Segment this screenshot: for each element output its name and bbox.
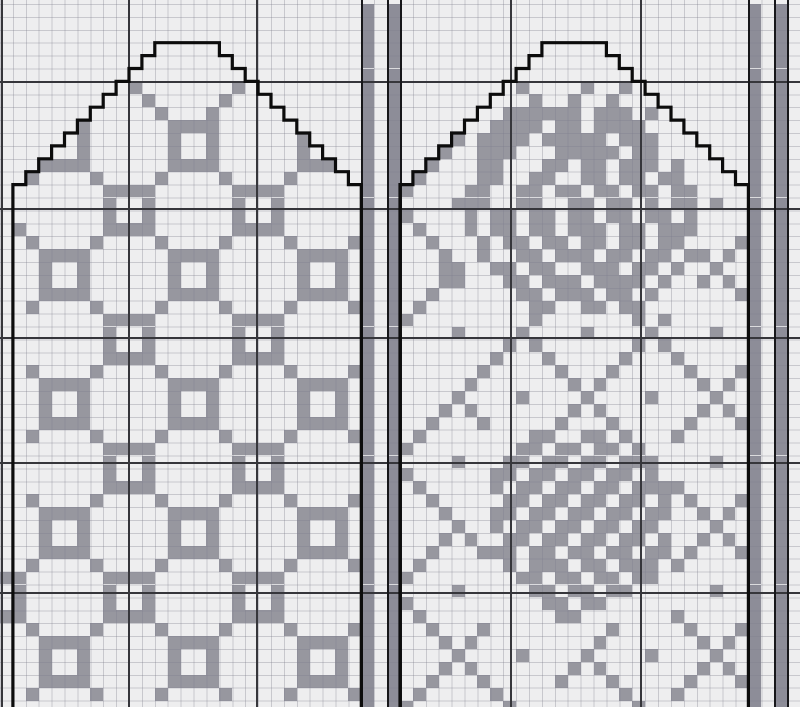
pattern-stitch-cell <box>581 223 594 236</box>
pattern-stitch-cell <box>439 404 452 417</box>
pattern-stitch-cell <box>606 146 619 159</box>
steek-stitch-cell <box>361 468 374 481</box>
pattern-stitch-cell <box>568 185 581 198</box>
pattern-stitch-cell <box>310 675 323 688</box>
steek-stitch-cell <box>361 610 374 623</box>
steek-stitch-cell <box>387 365 400 378</box>
steek-stitch-cell <box>361 301 374 314</box>
steek-stitch-cell <box>748 198 761 211</box>
pattern-stitch-cell <box>594 262 607 275</box>
pattern-stitch-cell <box>477 675 490 688</box>
pattern-stitch-cell <box>568 481 581 494</box>
pattern-stitch-cell <box>90 365 103 378</box>
pattern-stitch-cell <box>735 546 748 559</box>
steek-stitch-cell <box>361 236 374 249</box>
pattern-stitch-cell <box>671 688 684 701</box>
pattern-stitch-cell <box>297 262 310 275</box>
pattern-stitch-cell <box>658 249 671 262</box>
pattern-stitch-cell <box>568 662 581 675</box>
pattern-stitch-cell <box>503 120 516 133</box>
pattern-stitch-cell <box>606 94 619 107</box>
pattern-stitch-cell <box>503 533 516 546</box>
pattern-stitch-cell <box>490 468 503 481</box>
pattern-stitch-cell <box>116 352 129 365</box>
steek-stitch-cell <box>774 520 787 533</box>
pattern-stitch-cell <box>77 120 90 133</box>
pattern-stitch-cell <box>671 610 684 623</box>
pattern-stitch-cell <box>77 404 90 417</box>
pattern-stitch-cell <box>168 675 181 688</box>
pattern-stitch-cell <box>181 249 194 262</box>
pattern-stitch-cell <box>439 507 452 520</box>
steek-stitch-cell <box>774 456 787 469</box>
pattern-stitch-cell <box>52 159 65 172</box>
steek-stitch-cell <box>748 662 761 675</box>
steek-stitch-cell <box>748 352 761 365</box>
steek-stitch-cell <box>748 610 761 623</box>
pattern-stitch-cell <box>477 249 490 262</box>
pattern-stitch-cell <box>697 507 710 520</box>
pattern-stitch-cell <box>516 288 529 301</box>
steek-stitch-cell <box>748 365 761 378</box>
pattern-stitch-cell <box>39 662 52 675</box>
pattern-stitch-cell <box>348 623 361 636</box>
pattern-stitch-cell <box>52 546 65 559</box>
pattern-stitch-cell <box>697 533 710 546</box>
pattern-stitch-cell <box>658 533 671 546</box>
pattern-stitch-cell <box>581 468 594 481</box>
pattern-stitch-cell <box>632 146 645 159</box>
pattern-stitch-cell <box>619 288 632 301</box>
pattern-stitch-cell <box>490 520 503 533</box>
pattern-stitch-cell <box>581 133 594 146</box>
pattern-stitch-cell <box>426 546 439 559</box>
pattern-stitch-cell <box>490 120 503 133</box>
pattern-stitch-cell <box>232 327 245 340</box>
pattern-stitch-cell <box>594 301 607 314</box>
pattern-stitch-cell <box>632 159 645 172</box>
pattern-stitch-cell <box>348 430 361 443</box>
pattern-stitch-cell <box>516 533 529 546</box>
steek-stitch-cell <box>774 133 787 146</box>
steek-stitch-cell <box>748 559 761 572</box>
pattern-stitch-cell <box>116 443 129 456</box>
pattern-stitch-cell <box>619 494 632 507</box>
pattern-stitch-cell <box>645 327 658 340</box>
steek-stitch-cell <box>361 365 374 378</box>
steek-stitch-cell <box>774 430 787 443</box>
pattern-stitch-cell <box>619 559 632 572</box>
pattern-stitch-cell <box>65 417 78 430</box>
steek-stitch-cell <box>387 120 400 133</box>
steek-stitch-cell <box>361 404 374 417</box>
steek-stitch-cell <box>387 352 400 365</box>
pattern-stitch-cell <box>297 275 310 288</box>
pattern-stitch-cell <box>297 391 310 404</box>
pattern-stitch-cell <box>581 172 594 185</box>
pattern-stitch-cell <box>684 185 697 198</box>
steek-stitch-cell <box>387 597 400 610</box>
pattern-stitch-cell <box>658 494 671 507</box>
steek-stitch-cell <box>387 585 400 598</box>
pattern-stitch-cell <box>568 198 581 211</box>
pattern-stitch-cell <box>426 417 439 430</box>
pattern-stitch-cell <box>206 417 219 430</box>
pattern-stitch-cell <box>323 159 336 172</box>
pattern-stitch-cell <box>39 546 52 559</box>
steek-stitch-cell <box>361 688 374 701</box>
pattern-stitch-cell <box>568 288 581 301</box>
pattern-stitch-cell <box>503 210 516 223</box>
pattern-stitch-cell <box>619 133 632 146</box>
pattern-stitch-cell <box>542 210 555 223</box>
pattern-stitch-cell <box>632 236 645 249</box>
pattern-stitch-cell <box>142 339 155 352</box>
pattern-stitch-cell <box>400 443 413 456</box>
pattern-stitch-cell <box>671 352 684 365</box>
steek-stitch-cell <box>748 120 761 133</box>
steek-stitch-cell <box>387 417 400 430</box>
steek-stitch-cell <box>361 133 374 146</box>
pattern-stitch-cell <box>284 301 297 314</box>
pattern-stitch-cell <box>568 133 581 146</box>
steek-stitch-cell <box>361 623 374 636</box>
pattern-stitch-cell <box>297 378 310 391</box>
pattern-stitch-cell <box>13 597 26 610</box>
pattern-stitch-cell <box>645 391 658 404</box>
steek-stitch-cell <box>361 378 374 391</box>
steek-stitch-cell <box>361 352 374 365</box>
pattern-stitch-cell <box>477 417 490 430</box>
pattern-stitch-cell <box>400 210 413 223</box>
pattern-stitch-cell <box>516 185 529 198</box>
pattern-stitch-cell <box>606 365 619 378</box>
steek-stitch-cell <box>387 701 400 707</box>
steek-stitch-cell <box>774 610 787 623</box>
steek-stitch-cell <box>387 533 400 546</box>
pattern-stitch-cell <box>413 559 426 572</box>
pattern-stitch-cell <box>529 249 542 262</box>
pattern-stitch-cell <box>619 688 632 701</box>
steek-stitch-cell <box>361 636 374 649</box>
pattern-stitch-cell <box>142 610 155 623</box>
pattern-stitch-cell <box>77 533 90 546</box>
steek-stitch-cell <box>774 210 787 223</box>
pattern-stitch-cell <box>671 172 684 185</box>
pattern-stitch-cell <box>155 172 168 185</box>
pattern-stitch-cell <box>658 507 671 520</box>
pattern-stitch-cell <box>503 559 516 572</box>
pattern-stitch-cell <box>542 559 555 572</box>
pattern-stitch-cell <box>516 572 529 585</box>
pattern-stitch-cell <box>542 275 555 288</box>
pattern-stitch-cell <box>258 610 271 623</box>
pattern-stitch-cell <box>245 314 258 327</box>
pattern-stitch-cell <box>103 610 116 623</box>
pattern-stitch-cell <box>194 159 207 172</box>
pattern-stitch-cell <box>632 559 645 572</box>
steek-stitch-cell <box>361 223 374 236</box>
pattern-stitch-cell <box>632 481 645 494</box>
pattern-stitch-cell <box>155 559 168 572</box>
pattern-stitch-cell <box>684 249 697 262</box>
pattern-stitch-cell <box>477 146 490 159</box>
steek-stitch-cell <box>387 481 400 494</box>
pattern-stitch-cell <box>232 572 245 585</box>
steek-stitch-cell <box>361 572 374 585</box>
steek-stitch-cell <box>387 391 400 404</box>
pattern-stitch-cell <box>142 185 155 198</box>
pattern-stitch-cell <box>26 365 39 378</box>
pattern-stitch-cell <box>671 430 684 443</box>
pattern-stitch-cell <box>645 249 658 262</box>
pattern-stitch-cell <box>258 481 271 494</box>
pattern-stitch-cell <box>129 352 142 365</box>
pattern-stitch-cell <box>619 198 632 211</box>
pattern-stitch-cell <box>39 288 52 301</box>
pattern-stitch-cell <box>632 572 645 585</box>
steek-stitch-cell <box>361 597 374 610</box>
pattern-stitch-cell <box>645 133 658 146</box>
pattern-stitch-cell <box>542 546 555 559</box>
pattern-stitch-cell <box>529 339 542 352</box>
pattern-stitch-cell <box>594 520 607 533</box>
steek-stitch-cell <box>361 172 374 185</box>
pattern-stitch-cell <box>619 456 632 469</box>
pattern-stitch-cell <box>671 481 684 494</box>
pattern-stitch-cell <box>542 262 555 275</box>
pattern-stitch-cell <box>155 365 168 378</box>
pattern-stitch-cell <box>142 223 155 236</box>
steek-stitch-cell <box>387 494 400 507</box>
pattern-stitch-cell <box>155 623 168 636</box>
pattern-stitch-cell <box>529 107 542 120</box>
pattern-stitch-cell <box>632 185 645 198</box>
pattern-stitch-cell <box>581 301 594 314</box>
pattern-stitch-cell <box>77 146 90 159</box>
pattern-stitch-cell <box>13 610 26 623</box>
pattern-stitch-cell <box>271 585 284 598</box>
pattern-stitch-cell <box>619 81 632 94</box>
pattern-stitch-cell <box>594 236 607 249</box>
pattern-stitch-cell <box>129 314 142 327</box>
pattern-stitch-cell <box>594 494 607 507</box>
pattern-stitch-cell <box>619 249 632 262</box>
steek-stitch-cell <box>774 417 787 430</box>
pattern-stitch-cell <box>490 481 503 494</box>
pattern-stitch-cell <box>13 572 26 585</box>
pattern-stitch-cell <box>632 223 645 236</box>
steek-stitch-cell <box>774 675 787 688</box>
pattern-stitch-cell <box>142 443 155 456</box>
pattern-stitch-cell <box>271 352 284 365</box>
pattern-stitch-cell <box>77 636 90 649</box>
pattern-stitch-cell <box>26 236 39 249</box>
pattern-stitch-cell <box>490 133 503 146</box>
pattern-stitch-cell <box>606 585 619 598</box>
pattern-stitch-cell <box>555 133 568 146</box>
pattern-stitch-cell <box>194 120 207 133</box>
pattern-stitch-cell <box>155 430 168 443</box>
steek-stitch-cell <box>774 572 787 585</box>
steek-stitch-cell <box>774 198 787 211</box>
pattern-stitch-cell <box>568 468 581 481</box>
pattern-stitch-cell <box>232 198 245 211</box>
pattern-stitch-cell <box>645 507 658 520</box>
pattern-stitch-cell <box>77 249 90 262</box>
steek-stitch-cell <box>361 107 374 120</box>
pattern-stitch-cell <box>310 636 323 649</box>
steek-stitch-cell <box>748 585 761 598</box>
pattern-stitch-cell <box>65 378 78 391</box>
pattern-stitch-cell <box>632 262 645 275</box>
pattern-stitch-cell <box>284 365 297 378</box>
pattern-stitch-cell <box>568 585 581 598</box>
pattern-stitch-cell <box>219 236 232 249</box>
pattern-stitch-cell <box>477 198 490 211</box>
steek-stitch-cell <box>361 546 374 559</box>
steek-stitch-cell <box>361 662 374 675</box>
pattern-stitch-cell <box>594 146 607 159</box>
pattern-stitch-cell <box>490 507 503 520</box>
steek-stitch-cell <box>387 507 400 520</box>
pattern-stitch-cell <box>335 662 348 675</box>
pattern-stitch-cell <box>103 210 116 223</box>
steek-stitch-cell <box>361 262 374 275</box>
pattern-stitch-cell <box>619 468 632 481</box>
steek-stitch-cell <box>361 159 374 172</box>
pattern-stitch-cell <box>542 597 555 610</box>
pattern-stitch-cell <box>39 520 52 533</box>
pattern-stitch-cell <box>77 675 90 688</box>
pattern-stitch-cell <box>206 675 219 688</box>
steek-stitch-cell <box>361 288 374 301</box>
steek-stitch-cell <box>774 17 787 30</box>
pattern-stitch-cell <box>555 146 568 159</box>
pattern-stitch-cell <box>645 468 658 481</box>
pattern-stitch-cell <box>335 391 348 404</box>
pattern-stitch-cell <box>490 352 503 365</box>
pattern-stitch-cell <box>619 585 632 598</box>
pattern-stitch-cell <box>555 572 568 585</box>
pattern-stitch-cell <box>606 675 619 688</box>
steek-stitch-cell <box>748 494 761 507</box>
pattern-stitch-cell <box>168 120 181 133</box>
pattern-stitch-cell <box>77 378 90 391</box>
steek-stitch-cell <box>774 314 787 327</box>
pattern-stitch-cell <box>155 236 168 249</box>
pattern-stitch-cell <box>632 275 645 288</box>
pattern-stitch-cell <box>219 172 232 185</box>
pattern-stitch-cell <box>645 288 658 301</box>
pattern-stitch-cell <box>658 236 671 249</box>
steek-stitch-cell <box>387 314 400 327</box>
steek-stitch-cell <box>361 17 374 30</box>
pattern-stitch-cell <box>555 249 568 262</box>
steek-stitch-cell <box>748 675 761 688</box>
steek-stitch-cell <box>748 546 761 559</box>
steek-stitch-cell <box>361 94 374 107</box>
pattern-stitch-cell <box>206 507 219 520</box>
pattern-stitch-cell <box>555 597 568 610</box>
pattern-stitch-cell <box>39 649 52 662</box>
pattern-stitch-cell <box>258 185 271 198</box>
pattern-stitch-cell <box>568 507 581 520</box>
pattern-stitch-cell <box>116 610 129 623</box>
pattern-stitch-cell <box>735 288 748 301</box>
steek-stitch-cell <box>774 352 787 365</box>
pattern-stitch-cell <box>103 585 116 598</box>
pattern-stitch-cell <box>168 649 181 662</box>
steek-stitch-cell <box>387 662 400 675</box>
pattern-stitch-cell <box>297 133 310 146</box>
pattern-stitch-cell <box>465 198 478 211</box>
pattern-stitch-cell <box>335 288 348 301</box>
pattern-stitch-cell <box>632 701 645 707</box>
steek-stitch-cell <box>387 546 400 559</box>
pattern-stitch-cell <box>142 314 155 327</box>
pattern-stitch-cell <box>606 417 619 430</box>
pattern-stitch-cell <box>684 675 697 688</box>
steek-stitch-cell <box>774 30 787 43</box>
steek-stitch-cell <box>748 69 761 82</box>
pattern-stitch-cell <box>529 468 542 481</box>
steek-stitch-cell <box>774 378 787 391</box>
pattern-stitch-cell <box>323 675 336 688</box>
pattern-stitch-cell <box>26 494 39 507</box>
steek-stitch-cell <box>361 585 374 598</box>
pattern-stitch-cell <box>103 223 116 236</box>
pattern-stitch-cell <box>516 133 529 146</box>
pattern-stitch-cell <box>645 546 658 559</box>
pattern-stitch-cell <box>335 275 348 288</box>
pattern-stitch-cell <box>77 546 90 559</box>
pattern-stitch-cell <box>400 185 413 198</box>
pattern-stitch-cell <box>465 185 478 198</box>
pattern-stitch-cell <box>310 378 323 391</box>
pattern-stitch-cell <box>271 223 284 236</box>
pattern-stitch-cell <box>52 249 65 262</box>
pattern-stitch-cell <box>65 159 78 172</box>
steek-stitch-cell <box>748 404 761 417</box>
pattern-stitch-cell <box>529 481 542 494</box>
pattern-stitch-cell <box>77 133 90 146</box>
pattern-stitch-cell <box>129 481 142 494</box>
pattern-stitch-cell <box>516 120 529 133</box>
pattern-stitch-cell <box>39 675 52 688</box>
pattern-stitch-cell <box>606 468 619 481</box>
steek-stitch-cell <box>748 56 761 69</box>
pattern-stitch-cell <box>103 198 116 211</box>
pattern-stitch-cell <box>65 288 78 301</box>
pattern-stitch-cell <box>658 339 671 352</box>
steek-stitch-cell <box>774 172 787 185</box>
pattern-stitch-cell <box>297 675 310 688</box>
pattern-stitch-cell <box>206 391 219 404</box>
pattern-stitch-cell <box>271 339 284 352</box>
pattern-stitch-cell <box>116 185 129 198</box>
pattern-stitch-cell <box>219 623 232 636</box>
pattern-stitch-cell <box>529 585 542 598</box>
pattern-stitch-cell <box>219 430 232 443</box>
pattern-stitch-cell <box>90 494 103 507</box>
steek-stitch-cell <box>387 4 400 17</box>
pattern-stitch-cell <box>581 649 594 662</box>
steek-stitch-cell <box>748 107 761 120</box>
steek-stitch-cell <box>748 275 761 288</box>
pattern-stitch-cell <box>155 301 168 314</box>
steek-stitch-cell <box>774 507 787 520</box>
